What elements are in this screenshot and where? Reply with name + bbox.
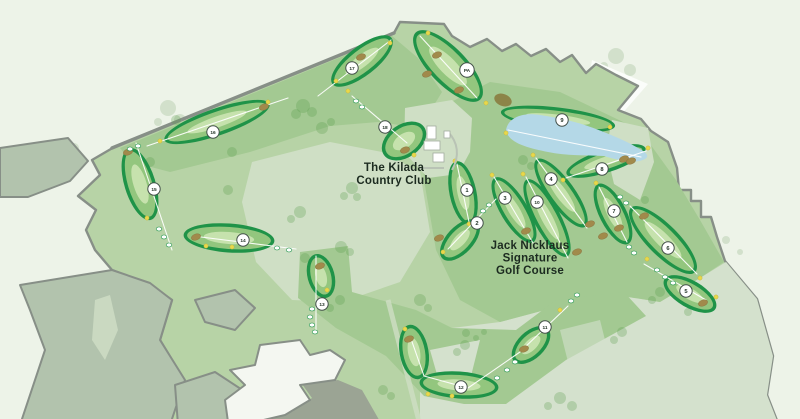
hole-13-tee bbox=[309, 323, 315, 327]
hole-5-marker: 5 bbox=[680, 285, 692, 297]
hole-4-marker-dot bbox=[531, 153, 535, 157]
svg-text:12: 12 bbox=[458, 385, 464, 391]
hole-1-marker: 1 bbox=[461, 184, 473, 196]
hole-5-marker-dot bbox=[714, 295, 718, 299]
hole-17-marker-dot bbox=[388, 41, 392, 45]
svg-text:2: 2 bbox=[475, 221, 478, 227]
clubhouse-building bbox=[433, 153, 444, 162]
hole-3-marker-dot bbox=[490, 173, 494, 177]
hole-15-marker-dot bbox=[145, 216, 149, 220]
clubhouse-building bbox=[444, 131, 450, 138]
hole-2-marker: 2 bbox=[471, 217, 483, 229]
hole-11-marker-dot bbox=[558, 308, 562, 312]
clubhouse-building bbox=[424, 141, 440, 150]
svg-text:16: 16 bbox=[210, 130, 216, 136]
hole-16-marker-dot bbox=[158, 139, 162, 143]
hole-14-marker-dot bbox=[204, 244, 208, 248]
hole-14-tee bbox=[286, 248, 292, 252]
svg-text:15: 15 bbox=[151, 187, 157, 193]
hole-18-marker-dot bbox=[412, 153, 416, 157]
hole-9-marker: 9 bbox=[556, 114, 568, 126]
hole-16-marker: 16 bbox=[207, 126, 219, 138]
hole-7-tee bbox=[631, 251, 637, 255]
hole-7-marker-dot bbox=[594, 181, 598, 185]
svg-text:10: 10 bbox=[534, 200, 540, 206]
hole-PA-marker: PA bbox=[460, 63, 474, 77]
hole-16-tee bbox=[135, 144, 141, 148]
hole-17-marker-dot bbox=[334, 79, 338, 83]
hole-10-marker: 10 bbox=[531, 196, 543, 208]
hole-15-marker: 15 bbox=[148, 183, 160, 195]
hole-8-marker-dot bbox=[561, 178, 565, 182]
hole-6-marker-dot bbox=[698, 276, 702, 280]
hole-12-tee bbox=[494, 376, 500, 380]
hole-18-marker-dot bbox=[346, 89, 350, 93]
svg-text:13: 13 bbox=[319, 302, 325, 308]
hole-7-marker: 7 bbox=[608, 205, 620, 217]
hole-11-tee bbox=[574, 293, 580, 297]
hole-12-marker: 12 bbox=[455, 381, 467, 393]
hole-13-tee bbox=[312, 330, 318, 334]
hole-2-tee bbox=[480, 209, 486, 213]
hole-12-marker-dot bbox=[403, 327, 407, 331]
hole-5-tee bbox=[670, 281, 676, 285]
hole-11-tee bbox=[568, 299, 574, 303]
hole-16-marker-dot bbox=[266, 100, 270, 104]
hole-15-tee bbox=[166, 243, 172, 247]
hole-10-marker-dot bbox=[521, 172, 525, 176]
hole-13-marker-dot bbox=[325, 288, 329, 292]
clubhouse-label: The KiladaCountry Club bbox=[356, 162, 431, 187]
hole-13-tee bbox=[309, 307, 315, 311]
svg-text:PA: PA bbox=[464, 68, 471, 74]
hole-5-tee bbox=[662, 275, 668, 279]
hole-12-tee bbox=[504, 368, 510, 372]
hole-5-tee bbox=[654, 268, 660, 272]
hole-18-tee bbox=[359, 105, 365, 109]
svg-text:18: 18 bbox=[382, 125, 388, 131]
hole-18-tee bbox=[353, 99, 359, 103]
hole-12-marker-dot bbox=[426, 392, 430, 396]
hole-PA-marker-dot bbox=[484, 101, 488, 105]
svg-text:11: 11 bbox=[542, 325, 547, 331]
hole-6-tee bbox=[617, 195, 623, 199]
svg-text:17: 17 bbox=[349, 66, 355, 72]
hole-14-tee bbox=[274, 246, 280, 250]
hole-2-tee bbox=[486, 203, 492, 207]
hole-15-tee bbox=[156, 227, 162, 231]
hole-13-tee bbox=[307, 315, 313, 319]
golf-course-map: 123104567891112131415161718PA The Kilada… bbox=[0, 0, 800, 419]
hole-12-tee bbox=[512, 360, 518, 364]
hole-7-tee bbox=[626, 245, 632, 249]
hole-5-marker-dot bbox=[645, 257, 649, 261]
hole-16-tee bbox=[127, 147, 133, 151]
hole-17-marker: 17 bbox=[346, 62, 358, 74]
hole-6-tee bbox=[623, 201, 629, 205]
hole-6-marker: 6 bbox=[662, 242, 674, 254]
hole-15-tee bbox=[161, 235, 167, 239]
hole-8-marker-dot bbox=[646, 146, 650, 150]
hole-13-marker: 13 bbox=[316, 298, 328, 310]
hole-2-marker-dot bbox=[441, 250, 445, 254]
hole-9-marker-dot bbox=[504, 131, 508, 135]
clubhouse-building bbox=[427, 126, 436, 139]
hole-8-marker: 8 bbox=[596, 163, 608, 175]
hole-14-marker-dot bbox=[230, 245, 234, 249]
hole-3-marker: 3 bbox=[499, 192, 511, 204]
svg-text:14: 14 bbox=[240, 238, 246, 244]
hole-9-marker-dot bbox=[608, 125, 612, 129]
map-canvas: 123104567891112131415161718PA The Kilada… bbox=[0, 0, 800, 419]
hole-11-marker: 11 bbox=[539, 321, 551, 333]
hole-12-marker-dot bbox=[450, 394, 454, 398]
hole-4-marker: 4 bbox=[545, 173, 557, 185]
hole-14-marker: 14 bbox=[237, 234, 249, 246]
hole-PA-marker-dot bbox=[426, 31, 430, 35]
svg-text:7: 7 bbox=[612, 209, 615, 215]
hole-18-marker: 18 bbox=[379, 121, 391, 133]
